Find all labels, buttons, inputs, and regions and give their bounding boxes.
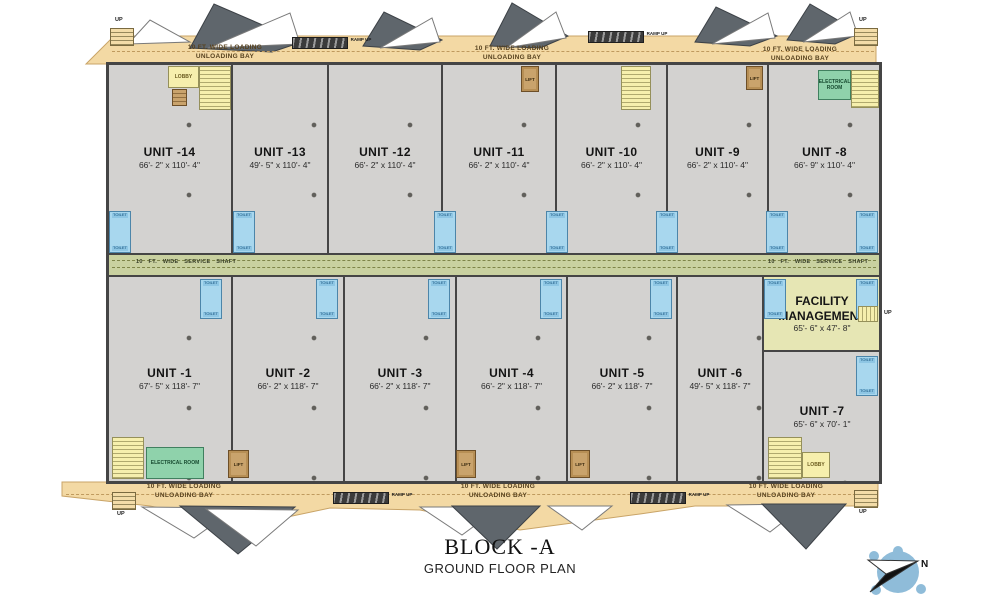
loading-bay-label: 10 FT. WIDE LOADING UNLOADING BAY (124, 483, 244, 501)
loading-bay-label: 10 FT. WIDE LOADING UNLOADING BAY (740, 46, 860, 64)
unit-6: UNIT -6 49'- 5" x 118'- 7" (676, 277, 762, 482)
toilet-label: TOILET (653, 281, 669, 286)
toilet-label: TOILET (203, 312, 219, 317)
loading-bay-label-line1: 10 FT. WIDE LOADING (438, 483, 558, 492)
toilet-block: TOILETTOILET (428, 279, 450, 319)
up-label: UP (117, 511, 125, 517)
lift-label: LIFT (750, 76, 760, 81)
loading-bay-label-line1: 10 FT. WIDE LOADING (740, 46, 860, 55)
toilet-label: TOILET (659, 246, 675, 251)
loading-bay-label-line1: 10 FT. WIDE LOADING (726, 483, 846, 492)
ramp-chevrons (588, 31, 644, 43)
lobby-room: LOBBY (802, 452, 830, 478)
toilet-block: TOILETTOILET (650, 279, 672, 319)
unit-10-name: UNIT -10 (582, 145, 642, 160)
compass-north-label: N (921, 559, 928, 570)
up-label: UP (115, 17, 123, 23)
electrical-room-label: ELECTRICAL ROOM (819, 79, 851, 92)
unit-2-name: UNIT -2 (262, 366, 315, 381)
unit-11-name: UNIT -11 (469, 145, 528, 160)
loading-bay-label: 10 FT. WIDE LOADING UNLOADING BAY (165, 44, 285, 62)
lift-label: LIFT (234, 462, 244, 467)
lift-label: LIFT (461, 462, 471, 467)
unit-5-name: UNIT -5 (596, 366, 649, 381)
loading-bay-label-line2: UNLOADING BAY (726, 492, 846, 501)
toilet-block: TOILETTOILET (656, 211, 678, 253)
lobby-room: LOBBY (168, 66, 199, 88)
compass-rose: N (868, 546, 928, 595)
staircase (199, 66, 231, 110)
ramp-chevrons (630, 492, 686, 504)
unit-9: UNIT -9 66'- 2" x 110'- 4" (666, 64, 767, 253)
loading-bay-label-line2: UNLOADING BAY (124, 492, 244, 501)
corner-stair (854, 490, 878, 508)
toilet-label: TOILET (112, 213, 128, 218)
service-shaft-dash (112, 267, 876, 268)
ramp-up-label: RAMP UP (390, 492, 414, 497)
toilet-label: TOILET (203, 281, 219, 286)
toilet-block: TOILETTOILET (109, 211, 131, 253)
toilet-block: TOILETTOILET (766, 211, 788, 253)
toilet-label: TOILET (859, 213, 875, 218)
toilet-label: TOILET (236, 213, 252, 218)
unit-10-dims: 66'- 2" x 110'- 4" (577, 160, 646, 171)
toilet-label: TOILET (769, 246, 785, 251)
toilet-label: TOILET (859, 246, 875, 251)
toilet-label: TOILET (319, 281, 335, 286)
up-label: UP (859, 509, 867, 515)
loading-bay-label-line1: 10 FT. WIDE LOADING (452, 45, 572, 54)
toilet-block: TOILETTOILET (316, 279, 338, 319)
staircase (851, 70, 879, 108)
toilet-label: TOILET (236, 246, 252, 251)
block-title: BLOCK -A (350, 534, 650, 560)
unit-8-dims: 66'- 9" x 110'- 4" (790, 160, 859, 171)
unit-4-name: UNIT -4 (485, 366, 538, 381)
toilet-label: TOILET (859, 358, 875, 363)
ramp-up-label: RAMP UP (645, 31, 669, 36)
toilet-label: TOILET (653, 312, 669, 317)
toilet-block: TOILETTOILET (434, 211, 456, 253)
electrical-room-label: ELECTRICAL ROOM (151, 460, 200, 466)
loading-bay-label-line2: UNLOADING BAY (740, 55, 860, 64)
toilet-block: TOILETTOILET (540, 279, 562, 319)
toilet-label: TOILET (659, 213, 675, 218)
unit-11-dims: 66'- 2" x 110'- 4" (464, 160, 533, 171)
toilet-block: TOILETTOILET (200, 279, 222, 319)
electrical-room: ELECTRICAL ROOM (146, 447, 204, 479)
toilet-label: TOILET (437, 246, 453, 251)
unit-2-dims: 66'- 2" x 118'- 7" (253, 381, 322, 392)
loading-bay-label-line1: 10 FT. WIDE LOADING (165, 44, 285, 53)
unit-9-dims: 66'- 2" x 110'- 4" (683, 160, 752, 171)
unit-4-dims: 66'- 2" x 118'- 7" (477, 381, 546, 392)
loading-bay-label: 10 FT. WIDE LOADING UNLOADING BAY (452, 45, 572, 63)
toilet-label: TOILET (319, 312, 335, 317)
ramp-chevrons (333, 492, 389, 504)
toilet-label: TOILET (859, 389, 875, 394)
lift-shaft: LIFT (746, 66, 763, 90)
unit-6-dims: 49'- 5" x 118'- 7" (685, 381, 754, 392)
toilet-block: TOILETTOILET (546, 211, 568, 253)
unit-3-name: UNIT -3 (374, 366, 427, 381)
toilet-label: TOILET (859, 281, 875, 286)
unit-11: UNIT -11 66'- 2" x 110'- 4" (441, 64, 555, 253)
unit-6-name: UNIT -6 (694, 366, 747, 381)
up-label: UP (884, 310, 892, 316)
toilet-label: TOILET (767, 312, 783, 317)
unit-13-name: UNIT -13 (250, 145, 310, 160)
toilet-block: TOILETTOILET (764, 279, 786, 319)
lift-shaft: LIFT (456, 450, 476, 478)
toilet-label: TOILET (767, 281, 783, 286)
lift-shaft: LIFT (228, 450, 249, 478)
up-label: UP (859, 17, 867, 23)
lobby-label: LOBBY (807, 462, 825, 468)
loading-bay-label: 10 FT. WIDE LOADING UNLOADING BAY (438, 483, 558, 501)
toilet-label: TOILET (549, 213, 565, 218)
toilet-label: TOILET (543, 312, 559, 317)
ramp-chevrons (292, 37, 348, 49)
toilet-label: TOILET (431, 312, 447, 317)
unit-1-dims: 67'- 5" x 118'- 7" (135, 381, 204, 392)
loading-bay-label-line2: UNLOADING BAY (438, 492, 558, 501)
unit-13-dims: 49'- 5" x 110'- 4" (245, 160, 314, 171)
unit-12-name: UNIT -12 (355, 145, 415, 160)
toilet-block: TOILETTOILET (856, 211, 878, 253)
floor-plan-subtitle: GROUND FLOOR PLAN (350, 561, 650, 576)
unit-3-dims: 66'- 2" x 118'- 7" (365, 381, 434, 392)
service-shaft-label-right: 10 FT. WIDE SERVICE SHAFT (768, 259, 868, 265)
facility-exit-stair (858, 306, 878, 322)
unit-8-name: UNIT -8 (798, 145, 851, 160)
ramp-up-label: RAMP UP (349, 37, 373, 42)
loading-bay-label-line2: UNLOADING BAY (165, 53, 285, 62)
toilet-block: TOILETTOILET (856, 356, 878, 396)
unit-1-name: UNIT -1 (143, 366, 196, 381)
loading-bay-label-line1: 10 FT. WIDE LOADING (124, 483, 244, 492)
staircase (621, 66, 651, 110)
staircase (768, 437, 802, 479)
unit-7-name: UNIT -7 (796, 404, 849, 419)
floor-plan-page: { "title": { "block": "BLOCK -A", "subti… (0, 0, 1000, 600)
unit-5-dims: 66'- 2" x 118'- 7" (587, 381, 656, 392)
lift-shaft: LIFT (521, 66, 539, 92)
corner-stair (110, 28, 134, 46)
toilet-label: TOILET (437, 213, 453, 218)
electrical-room: ELECTRICAL ROOM (818, 70, 851, 100)
toilet-label: TOILET (769, 213, 785, 218)
toilet-label: TOILET (112, 246, 128, 251)
store-room (172, 89, 187, 106)
lift-shaft: LIFT (570, 450, 590, 478)
ramp-up-label: RAMP UP (687, 492, 711, 497)
loading-bay-label: 10 FT. WIDE LOADING UNLOADING BAY (726, 483, 846, 501)
toilet-label: TOILET (549, 246, 565, 251)
unit-12: UNIT -12 66'- 2" x 110'- 4" (327, 64, 441, 253)
service-shaft-label-left: 10 FT. WIDE SERVICE SHAFT (136, 259, 236, 265)
unit-12-dims: 66'- 2" x 110'- 4" (350, 160, 419, 171)
unit-9-name: UNIT -9 (691, 145, 744, 160)
lift-label: LIFT (525, 77, 535, 82)
lobby-label: LOBBY (175, 74, 193, 80)
toilet-label: TOILET (543, 281, 559, 286)
lift-label: LIFT (575, 462, 585, 467)
unit-14-name: UNIT -14 (140, 145, 200, 160)
unit-7-dims: 65'- 6" x 70'- 1" (789, 419, 854, 430)
staircase (112, 437, 144, 479)
service-shaft (108, 253, 880, 277)
corner-stair (854, 28, 878, 46)
drawing-title: BLOCK -A GROUND FLOOR PLAN (350, 534, 650, 576)
facility-management-dims: 65'- 6" x 47'- 8" (789, 323, 854, 333)
loading-bay-label-line2: UNLOADING BAY (452, 54, 572, 63)
unit-14-dims: 66'- 2" x 110'- 4" (135, 160, 204, 171)
toilet-label: TOILET (431, 281, 447, 286)
toilet-block: TOILETTOILET (233, 211, 255, 253)
